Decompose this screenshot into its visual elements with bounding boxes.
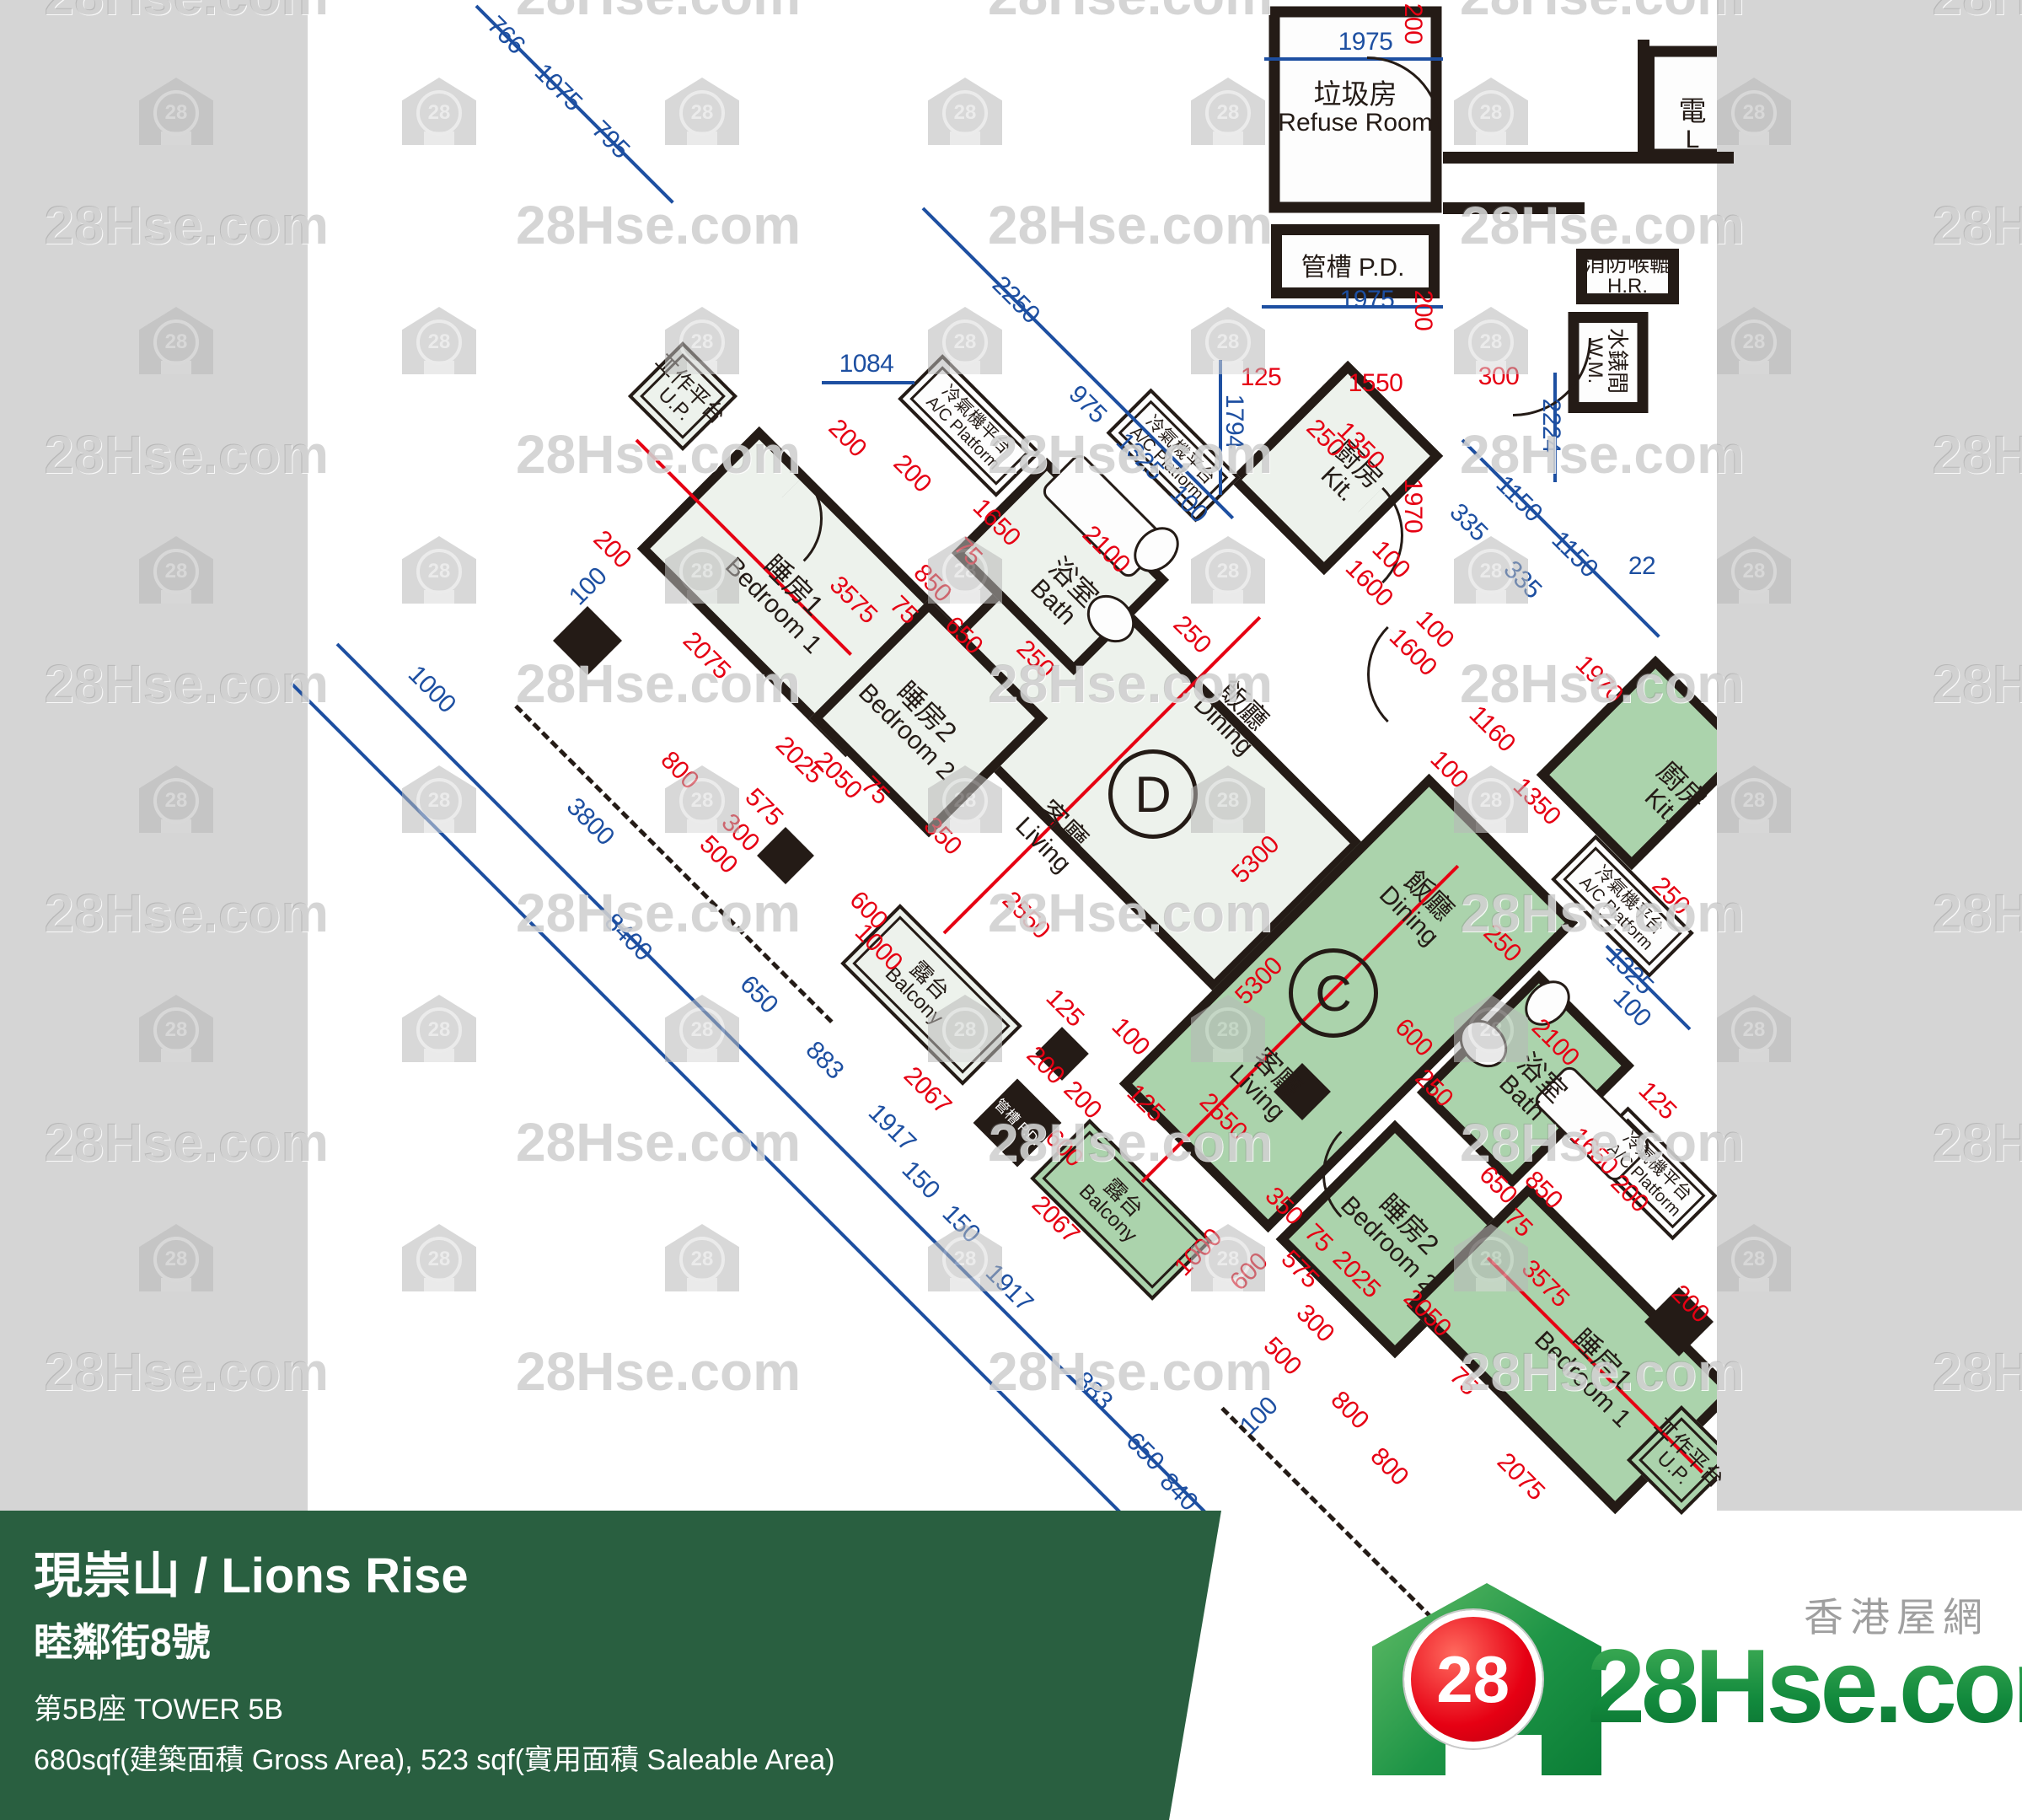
dim-label: 1970	[1398, 479, 1427, 534]
watermark-text: 28Hse.com	[988, 652, 1273, 715]
watermark-house-icon: 28	[1191, 78, 1265, 145]
watermark-text: 28Hse.com	[988, 1340, 1273, 1403]
watermark-28-badge: 28	[1205, 549, 1251, 594]
watermark-house-icon: 28	[1191, 995, 1265, 1062]
dim-label: 200	[1408, 290, 1437, 331]
dim-label: 1975	[1338, 28, 1393, 56]
area-label: 680sqf(建築面積 Gross Area), 523 sqf(實用面積 Sa…	[34, 1737, 834, 1778]
watermark-28-badge: 28	[1731, 1007, 1777, 1053]
watermark-28-badge: 28	[679, 778, 725, 824]
watermark-text: 28Hse.com	[1932, 194, 2022, 256]
watermark-28-badge: 28	[1468, 1007, 1514, 1053]
watermark-house-icon: 28	[1191, 1224, 1265, 1291]
watermark-house-icon: 28	[139, 536, 213, 604]
dim-label: 650	[734, 970, 783, 1019]
watermark-house-icon: 28	[928, 307, 1002, 374]
watermark-text: 28Hse.com	[516, 1340, 801, 1403]
watermark-house-icon: 28	[139, 1224, 213, 1291]
watermark-text: 28Hse.com	[1460, 1111, 1745, 1173]
dim-label: 200	[1398, 3, 1427, 45]
room-label-zh: 垃圾房	[1278, 79, 1432, 110]
watermark-28-badge: 28	[942, 778, 988, 824]
watermark-text: 28Hse.com	[1932, 882, 2022, 944]
watermark-text: 28Hse.com	[44, 1111, 329, 1173]
watermark-text: 28Hse.com	[44, 194, 329, 256]
watermark-text: 28Hse.com	[44, 652, 329, 715]
watermark-house-icon: 28	[1454, 78, 1528, 145]
watermark-28-badge: 28	[1205, 1007, 1251, 1053]
watermark-28-badge: 28	[942, 319, 988, 365]
wall-segment	[1443, 152, 1734, 164]
room-label-zh: 管槽 P.D.	[1301, 255, 1405, 282]
watermark-28-badge: 28	[416, 1237, 462, 1282]
watermark-text: 28Hse.com	[988, 0, 1273, 27]
watermark-house-icon: 28	[402, 995, 476, 1062]
watermark-house-icon: 28	[665, 995, 739, 1062]
watermark-text: 28Hse.com	[1932, 1111, 2022, 1173]
watermark-text: 28Hse.com	[1932, 652, 2022, 715]
dim-label: 1917	[862, 1098, 921, 1157]
watermark-text: 28Hse.com	[1460, 1340, 1745, 1403]
watermark-28-badge: 28	[942, 1237, 988, 1282]
watermark-house-icon: 28	[1454, 307, 1528, 374]
watermark-28-badge: 28	[1731, 90, 1777, 136]
watermark-28-badge: 28	[153, 778, 199, 824]
watermark-28-badge: 28	[942, 549, 988, 594]
watermark-house-icon: 28	[1191, 765, 1265, 833]
watermark-house-icon: 28	[1717, 1224, 1791, 1291]
room-label-en: L	[1679, 126, 1707, 153]
dim-label: 22	[1628, 552, 1655, 581]
watermark-house-icon: 28	[1717, 536, 1791, 604]
watermark-text: 28Hse.com	[516, 194, 801, 256]
watermark-house-icon: 28	[139, 307, 213, 374]
logo-28-badge: 28	[1404, 1610, 1542, 1748]
room-label-en: Refuse Room	[1278, 110, 1432, 137]
watermark-text: 28Hse.com	[1932, 423, 2022, 486]
watermark-text: 28Hse.com	[1460, 652, 1745, 715]
watermark-house-icon: 28	[1717, 995, 1791, 1062]
watermark-house-icon: 28	[1191, 307, 1265, 374]
property-address: 睦鄰街8號	[34, 1612, 211, 1667]
watermark-text: 28Hse.com	[44, 882, 329, 944]
watermark-house-icon: 28	[139, 78, 213, 145]
watermark-house-icon: 28	[665, 536, 739, 604]
watermark-28-badge: 28	[153, 549, 199, 594]
dim-label: 200	[823, 414, 872, 463]
watermark-text: 28Hse.com	[516, 882, 801, 944]
watermark-house-icon: 28	[665, 765, 739, 833]
watermark-house-icon: 28	[402, 78, 476, 145]
watermark-house-icon: 28	[139, 765, 213, 833]
watermark-28-badge: 28	[679, 1007, 725, 1053]
watermark-text: 28Hse.com	[988, 194, 1273, 256]
room-label-en: H.R.	[1584, 276, 1671, 298]
dim-label: 883	[800, 1036, 849, 1085]
room-label-en: W.M.	[1584, 328, 1606, 394]
watermark-house-icon: 28	[1454, 1224, 1528, 1291]
watermark-text: 28Hse.com	[516, 652, 801, 715]
watermark-text: 28Hse.com	[988, 423, 1273, 486]
watermark-text: 28Hse.com	[1460, 194, 1745, 256]
watermark-text: 28Hse.com	[988, 882, 1273, 944]
dim-label: 800	[1365, 1442, 1413, 1491]
watermark-house-icon: 28	[665, 1224, 739, 1291]
watermark-text: 28Hse.com	[516, 1111, 801, 1173]
watermark-house-icon: 28	[1717, 78, 1791, 145]
brand-text: 28Hse.com	[1587, 1627, 2022, 1747]
watermark-28-badge: 28	[153, 1237, 199, 1282]
room-label: 水錶間W.M.	[1584, 328, 1629, 394]
watermark-28-badge: 28	[679, 1237, 725, 1282]
unit-badge: C	[1289, 948, 1378, 1038]
dim-label: 840	[1154, 1468, 1203, 1517]
watermark-28-badge: 28	[416, 549, 462, 594]
watermark-house-icon: 28	[1454, 536, 1528, 604]
wall-segment	[1638, 40, 1649, 162]
watermark-28-badge: 28	[416, 90, 462, 136]
watermark-house-icon: 28	[402, 536, 476, 604]
watermark-house-icon: 28	[402, 307, 476, 374]
watermark-text: 28Hse.com	[1460, 882, 1745, 944]
dim-label: 100	[564, 562, 613, 611]
watermark-house-icon: 28	[1191, 536, 1265, 604]
watermark-text: 28Hse.com	[44, 1340, 329, 1403]
floorplan-page: 7661075795225097513251001084197519751794…	[0, 0, 2022, 1820]
watermark-28-badge: 28	[1731, 1237, 1777, 1282]
watermark-house-icon: 28	[1717, 765, 1791, 833]
watermark-house-icon: 28	[928, 536, 1002, 604]
dim-label: 200	[888, 449, 936, 498]
room-label: 垃圾房Refuse Room	[1278, 79, 1432, 137]
house-logo-icon: 28	[1372, 1583, 1601, 1775]
dim-label: 125	[1040, 984, 1089, 1033]
dim-label: 1000	[402, 660, 461, 719]
watermark-28-badge: 28	[416, 778, 462, 824]
dim-label: 1084	[839, 350, 894, 378]
watermark-text: 28Hse.com	[44, 423, 329, 486]
watermark-house-icon: 28	[665, 307, 739, 374]
watermark-28-badge: 28	[679, 90, 725, 136]
dim-label: 2075	[1491, 1447, 1550, 1506]
watermark-text: 28Hse.com	[1460, 423, 1745, 486]
room-label: 電L	[1679, 96, 1707, 153]
watermark-house-icon: 28	[1454, 995, 1528, 1062]
room-label-zh: 電	[1679, 96, 1707, 126]
watermark-28-badge: 28	[153, 1007, 199, 1053]
watermark-text: 28Hse.com	[1932, 1340, 2022, 1403]
watermark-28-badge: 28	[1205, 90, 1251, 136]
watermark-house-icon: 28	[402, 765, 476, 833]
watermark-28-badge: 28	[1205, 1237, 1251, 1282]
dim-label: 1550	[1349, 369, 1403, 398]
watermark-28-badge: 28	[416, 1007, 462, 1053]
watermark-28-badge: 28	[1731, 319, 1777, 365]
watermark-28-badge: 28	[1468, 90, 1514, 136]
room-label: 管槽 P.D.	[1301, 255, 1405, 282]
dim-label: 1975	[1340, 286, 1395, 314]
dim-line	[1264, 57, 1443, 61]
unit-badge: D	[1108, 749, 1198, 839]
watermark-28-badge: 28	[1731, 778, 1777, 824]
dim-label: 150	[896, 1156, 945, 1205]
watermark-text: 28Hse.com	[44, 0, 329, 27]
watermark-house-icon: 28	[665, 78, 739, 145]
watermark-28-badge: 28	[416, 319, 462, 365]
watermark-28-badge: 28	[679, 319, 725, 365]
watermark-house-icon: 28	[928, 765, 1002, 833]
tower-label: 第5B座 TOWER 5B	[34, 1686, 283, 1727]
watermark-house-icon: 28	[928, 78, 1002, 145]
watermark-28-badge: 28	[1468, 1237, 1514, 1282]
property-info-banner: 現崇山 / Lions Rise 睦鄰街8號 第5B座 TOWER 5B 680…	[0, 1511, 1221, 1820]
watermark-28-badge: 28	[1731, 549, 1777, 594]
watermark-house-icon: 28	[1454, 765, 1528, 833]
watermark-28-badge: 28	[1468, 549, 1514, 594]
watermark-28-badge: 28	[679, 549, 725, 594]
watermark-28-badge: 28	[153, 319, 199, 365]
watermark-28-badge: 28	[1205, 778, 1251, 824]
watermark-28-badge: 28	[1468, 319, 1514, 365]
watermark-28-badge: 28	[153, 90, 199, 136]
column	[757, 827, 814, 884]
watermark-28-badge: 28	[1205, 319, 1251, 365]
watermark-house-icon: 28	[139, 995, 213, 1062]
watermark-house-icon: 28	[928, 995, 1002, 1062]
watermark-house-icon: 28	[1717, 307, 1791, 374]
watermark-house-icon: 28	[928, 1224, 1002, 1291]
watermark-text: 28Hse.com	[516, 0, 801, 27]
28hse-logo: 香港屋網 28 28Hse.com	[1372, 1575, 2013, 1811]
watermark-28-badge: 28	[942, 90, 988, 136]
watermark-text: 28Hse.com	[1460, 0, 1745, 27]
watermark-house-icon: 28	[402, 1224, 476, 1291]
watermark-text: 28Hse.com	[1932, 0, 2022, 27]
room-label: 消防喉轆H.R.	[1584, 252, 1671, 298]
dim-label: 300	[1290, 1299, 1339, 1348]
watermark-28-badge: 28	[1468, 778, 1514, 824]
watermark-28-badge: 28	[942, 1007, 988, 1053]
watermark-text: 28Hse.com	[516, 423, 801, 486]
dim-label: 800	[1325, 1386, 1374, 1435]
dim-line	[822, 381, 914, 384]
room-label-zh: 水錶間	[1606, 328, 1629, 394]
watermark-text: 28Hse.com	[988, 1111, 1273, 1173]
property-title: 現崇山 / Lions Rise	[34, 1536, 469, 1607]
